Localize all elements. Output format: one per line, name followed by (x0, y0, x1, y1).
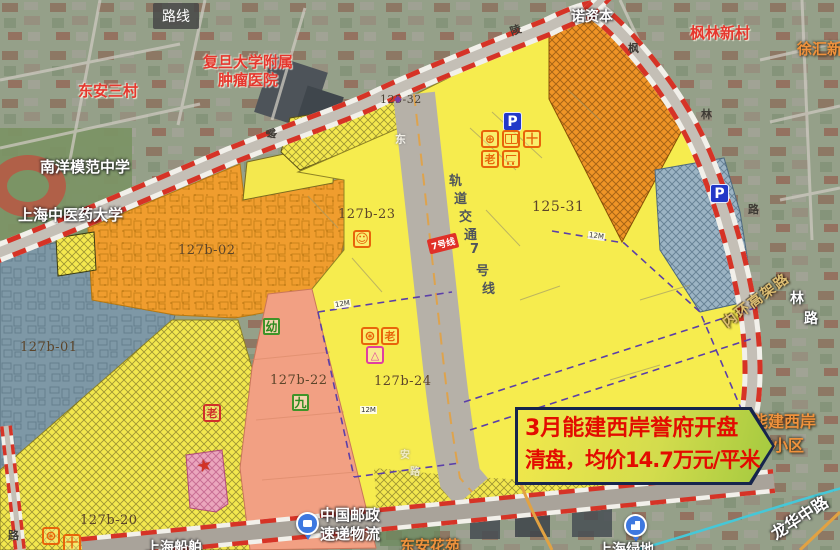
parcel-label-127b-01: 127b-01 (20, 340, 78, 355)
road-fenglin-char1: 枫 (628, 40, 639, 56)
parking-icon-2: P (710, 184, 729, 203)
kindergarten-icon: 幼 (263, 318, 280, 335)
clinic-icon-2: 十 (63, 534, 81, 550)
parcel-label-127b-24: 127b-24 (374, 374, 432, 389)
poi-fenglin-rd-v2: 路 (804, 308, 818, 328)
poi-dongan-huayuan: 东安花苑 (400, 535, 460, 550)
road-fenglin-char3: 路 (748, 201, 759, 217)
road-dongan-char1: 东 (395, 131, 406, 147)
parcel-label-125-31: 125-31 (532, 199, 584, 215)
nine-year-school-icon: 九 (292, 394, 309, 411)
poi-china-post: 中国邮政 速递物流 (320, 506, 380, 544)
parcel-label-127b-23: 127b-23 (338, 207, 396, 222)
callout-text: 3月能建西岸誉府开盘 清盘，均价14.7万元/平米 (525, 414, 759, 476)
poi-shzy-university: 上海中医药大学 (18, 204, 123, 225)
poi-dongan-sancun: 东安三村 (78, 80, 138, 101)
community-icon: ☺ (353, 230, 371, 248)
poi-nanyang-school: 南洋模范中学 (40, 156, 130, 177)
building-pin-icon[interactable] (624, 514, 647, 537)
callout-line2: 清盘，均价14.7万元/平米 (525, 444, 759, 476)
post-pin-icon[interactable] (296, 512, 319, 535)
poi-shanghai-lvdi: 上海绿地 (598, 539, 654, 550)
parcel-label-127b-02: 127b-02 (178, 243, 236, 258)
sports-icon: ⊕ (481, 130, 499, 148)
road-dongan-char3: 路 (410, 463, 420, 478)
wheel-icon-2: ⊛ (42, 527, 60, 545)
elderly-care-icon-3: 老 (203, 404, 221, 422)
parcel-label-127b-22: 127b-22 (270, 373, 328, 388)
elderly-care-icon-2: 老 (381, 327, 399, 345)
road-dongan-char2: 安 (400, 446, 410, 461)
library-icon (502, 130, 520, 148)
poi-nuo-capital: 诺资本 (571, 6, 613, 26)
market-icon (502, 150, 520, 168)
callout-line1: 3月能建西岸誉府开盘 (525, 414, 759, 444)
road-fenglin-char2: 林 (701, 106, 712, 122)
route-control[interactable]: 路线 (153, 3, 199, 29)
parcel-label-127b-20: 127b-20 (80, 513, 138, 528)
hatched-square (56, 232, 96, 276)
road-left-char: 路 (8, 527, 19, 543)
setback-label-2: 12M (360, 406, 377, 414)
substation-icon: △ (366, 346, 384, 364)
poi-fudan-cancer-hospital: 复旦大学附属 肿瘤医院 (193, 53, 303, 89)
elderly-care-icon: 老 (481, 150, 499, 168)
poi-shanghai-chuanbo: 上海船舶 (146, 537, 202, 550)
poi-xuhui-xincun: 徐汇新村 (797, 38, 840, 59)
parking-icon: P (503, 112, 522, 131)
poi-fenglin-rd-v1: 林 (790, 288, 804, 308)
planning-map[interactable]: 路线 东安三村 复旦大学附属 肿瘤医院 诺资本 枫林新村 徐汇新村 南洋模范中学… (0, 0, 840, 550)
purple-marker-icon: ◆ (394, 94, 402, 105)
poi-fenglin-xincun: 枫林新村 (690, 22, 750, 43)
wheel-icon: ⊛ (361, 327, 379, 345)
clinic-icon: 十 (523, 130, 541, 148)
price-callout: 3月能建西岸誉府开盘 清盘，均价14.7万元/平米 (515, 407, 775, 485)
